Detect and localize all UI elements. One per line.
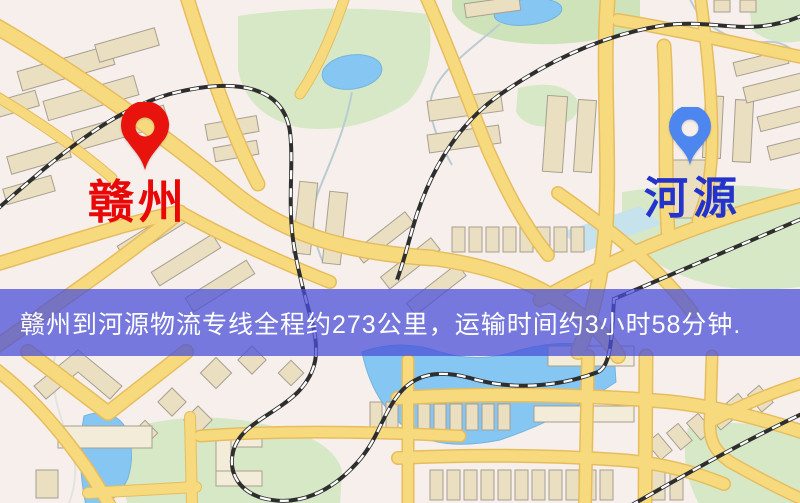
origin-marker-icon[interactable]	[119, 102, 171, 172]
map-canvas: 赣州到河源物流专线全程约273公里，运输时间约3小时58分钟. 赣州 河源	[0, 0, 800, 503]
origin-city-label: 赣州	[88, 180, 188, 226]
destination-marker-icon[interactable]	[667, 107, 713, 167]
route-info-banner: 赣州到河源物流专线全程约273公里，运输时间约3小时58分钟.	[0, 289, 800, 356]
route-info-text: 赣州到河源物流专线全程约273公里，运输时间约3小时58分钟.	[20, 305, 741, 341]
destination-city-label: 河源	[644, 177, 742, 221]
map-graphic	[0, 0, 800, 503]
